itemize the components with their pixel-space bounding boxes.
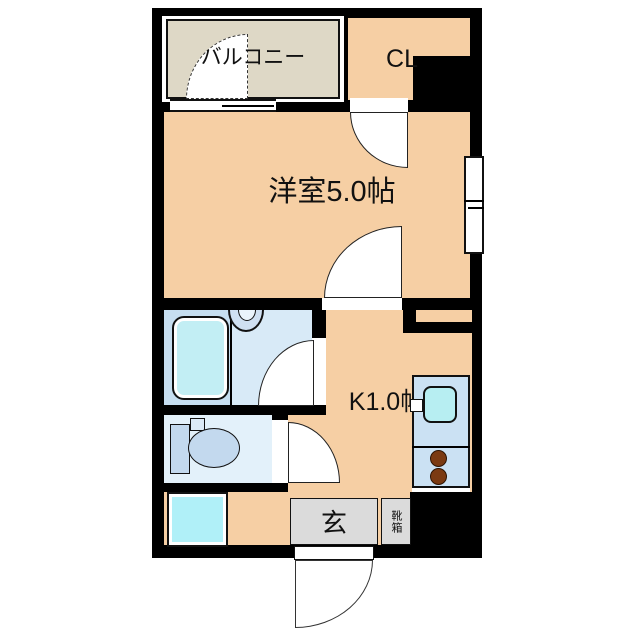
stove-burner-icon [430,450,447,467]
window-tick-line [464,200,484,202]
closet-doorway [350,98,408,112]
entrance-door-swing-icon [295,560,373,628]
pipe-space-block [410,492,482,558]
toilet-doorway [272,420,288,483]
window-icon [464,156,484,254]
shoebox-label: 靴箱 [381,500,411,544]
closet-label: CL [352,44,452,74]
entrance-doorway [294,546,374,560]
bathroom-doorway [312,338,326,405]
balcony-label: バルコニー [166,42,340,70]
western-room-label: 洋室5.0帖 [222,170,442,208]
wall-segment-niche-horizontal [403,322,472,333]
counter-divider-line [412,446,470,448]
bathtub-icon [172,316,229,400]
washbasin-bowl [238,310,256,321]
toilet-bowl-icon [188,428,240,468]
window-sash-line [222,105,274,107]
faucet-icon [410,399,423,412]
stove-burner-icon-2 [430,468,447,485]
washing-machine-pan-icon [167,492,228,547]
floorplan-canvas: バルコニー CL 洋室5.0帖 K1.0帖 [0,0,640,640]
window-tick-line-2 [468,207,484,209]
toilet-tank [170,424,190,474]
kitchen-sink-icon [423,386,457,423]
entrance-label: 玄 [290,498,378,545]
kitchen-doorway [322,298,402,310]
